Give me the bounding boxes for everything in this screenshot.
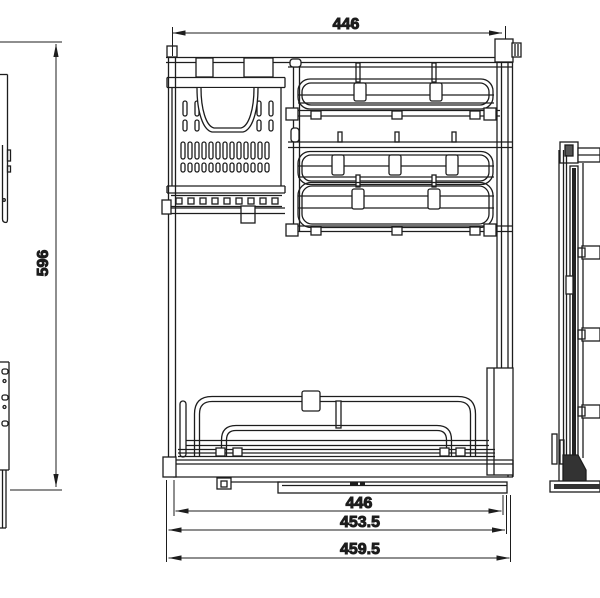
front-view	[162, 39, 521, 493]
dim-bottom-459-5: 459.5	[169, 541, 510, 561]
bottom-rail-assembly	[178, 391, 495, 457]
base-plate	[163, 457, 513, 477]
middle-shelf-lower	[298, 183, 494, 228]
dim-bottom-446: 446	[176, 495, 502, 514]
side-view-right	[550, 142, 600, 492]
dim-top-width: 446	[173, 16, 506, 56]
dim-label-height: 596	[35, 250, 52, 277]
upper-shelf	[286, 59, 500, 232]
basket	[162, 58, 285, 223]
drawing-svg: 446 596 446	[0, 0, 600, 598]
dim-label-bottom-446: 446	[346, 495, 373, 512]
dim-bottom-widths: 446 453.5 459.5	[167, 480, 511, 562]
middle-shelf	[286, 128, 513, 236]
side-view-left	[0, 75, 11, 529]
dim-label-bottom-453-5: 453.5	[340, 514, 380, 531]
middle-shelf-upper	[298, 152, 494, 185]
dim-label-top-width: 446	[333, 16, 360, 33]
dim-label-bottom-459-5: 459.5	[340, 541, 380, 558]
drawer-slide	[217, 478, 507, 493]
technical-drawing: 446 596 446	[0, 0, 600, 598]
shelf-stubs	[578, 148, 600, 418]
dim-bottom-453-5: 453.5	[169, 514, 506, 533]
